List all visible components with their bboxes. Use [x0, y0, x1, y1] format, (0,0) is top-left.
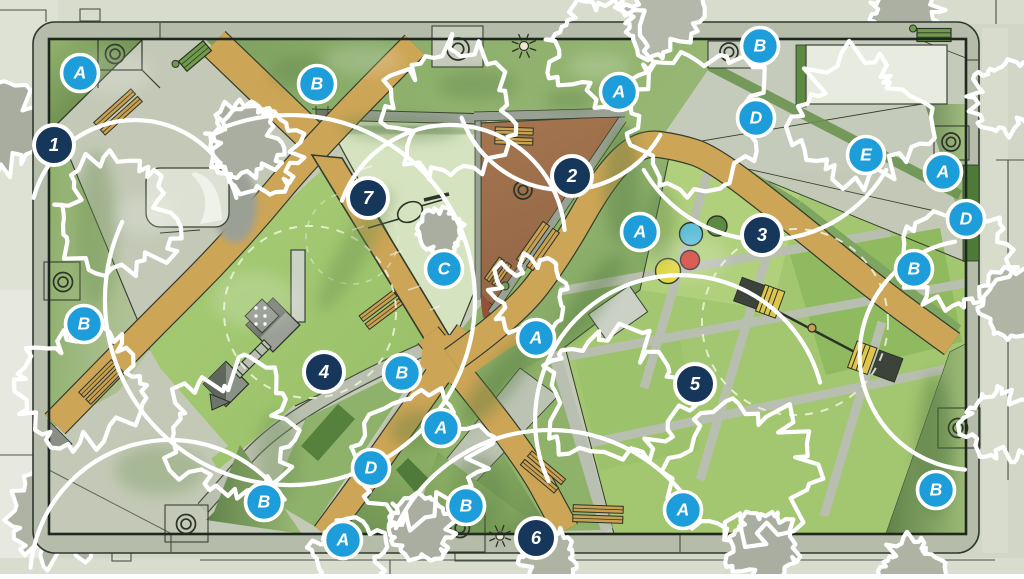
svg-text:B: B — [78, 314, 91, 334]
svg-text:3: 3 — [757, 224, 768, 245]
svg-text:B: B — [908, 259, 921, 279]
svg-text:6: 6 — [531, 527, 542, 548]
svg-text:A: A — [73, 63, 87, 83]
svg-text:B: B — [930, 480, 943, 500]
svg-text:B: B — [754, 36, 767, 56]
svg-text:4: 4 — [318, 361, 329, 382]
svg-text:C: C — [438, 259, 451, 279]
svg-text:A: A — [434, 418, 448, 438]
svg-text:D: D — [365, 458, 378, 478]
svg-text:7: 7 — [363, 187, 375, 208]
svg-text:B: B — [258, 492, 271, 512]
svg-text:E: E — [860, 145, 873, 165]
svg-text:1: 1 — [49, 134, 59, 155]
svg-text:B: B — [396, 363, 409, 383]
svg-text:2: 2 — [566, 165, 578, 186]
svg-text:A: A — [529, 328, 543, 348]
svg-text:D: D — [960, 209, 973, 229]
svg-text:D: D — [750, 108, 763, 128]
svg-text:A: A — [336, 530, 350, 550]
svg-text:B: B — [460, 496, 473, 516]
svg-text:5: 5 — [690, 373, 701, 394]
svg-text:A: A — [676, 500, 690, 520]
svg-text:A: A — [612, 82, 626, 102]
svg-text:B: B — [311, 74, 324, 94]
svg-text:A: A — [633, 222, 647, 242]
svg-text:A: A — [936, 162, 950, 182]
